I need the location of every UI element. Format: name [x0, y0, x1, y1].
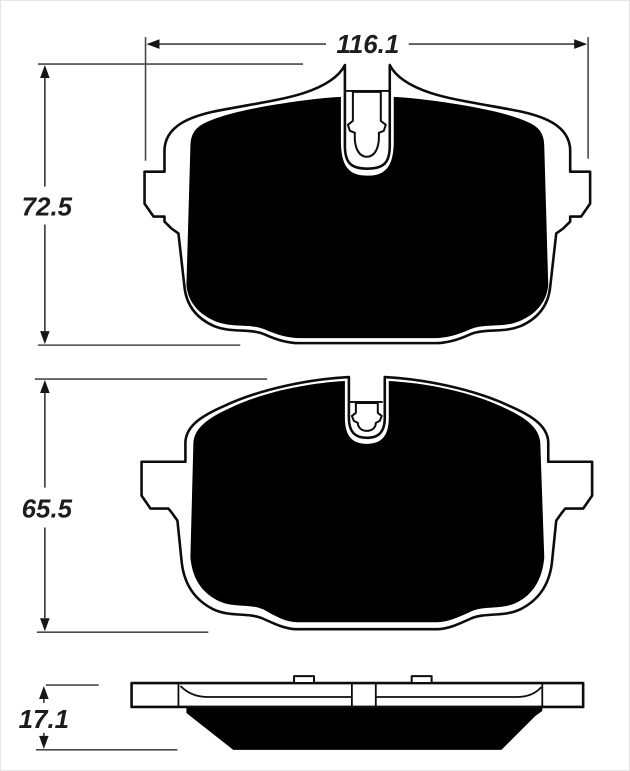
height1-arrow-up: [40, 65, 50, 78]
outer-pad-height-label: 72.5: [22, 194, 73, 222]
front-view-outer-pad: [145, 65, 591, 343]
outer-pad-spring-clip: [348, 92, 386, 157]
width-arrow-left: [147, 39, 160, 49]
inner-pad-spring-clip: [352, 403, 382, 431]
side-view-left-clip-tab: [294, 676, 314, 683]
thickness-arrow-up: [39, 686, 49, 699]
height1-arrow-down: [40, 331, 50, 344]
height2-arrow-up: [40, 380, 50, 393]
technical-drawing-canvas: 116.1 72.5 65.5 17.1: [0, 0, 630, 771]
brake-pad-drawing-svg: 116.1 72.5 65.5 17.1: [1, 1, 629, 770]
front-view-inner-pad: [142, 377, 593, 629]
side-view-pad: [132, 676, 584, 750]
inner-pad-height-label: 65.5: [22, 496, 73, 524]
side-view-right-clip-tab: [412, 676, 432, 683]
side-view-backing-plate: [132, 683, 584, 707]
width-arrow-right: [574, 39, 587, 49]
pad-thickness-label: 17.1: [19, 706, 69, 734]
thickness-arrow-down: [39, 736, 49, 749]
side-view-friction-material: [186, 706, 542, 750]
outer-pad-width-label: 116.1: [336, 31, 399, 59]
height2-arrow-down: [40, 618, 50, 631]
